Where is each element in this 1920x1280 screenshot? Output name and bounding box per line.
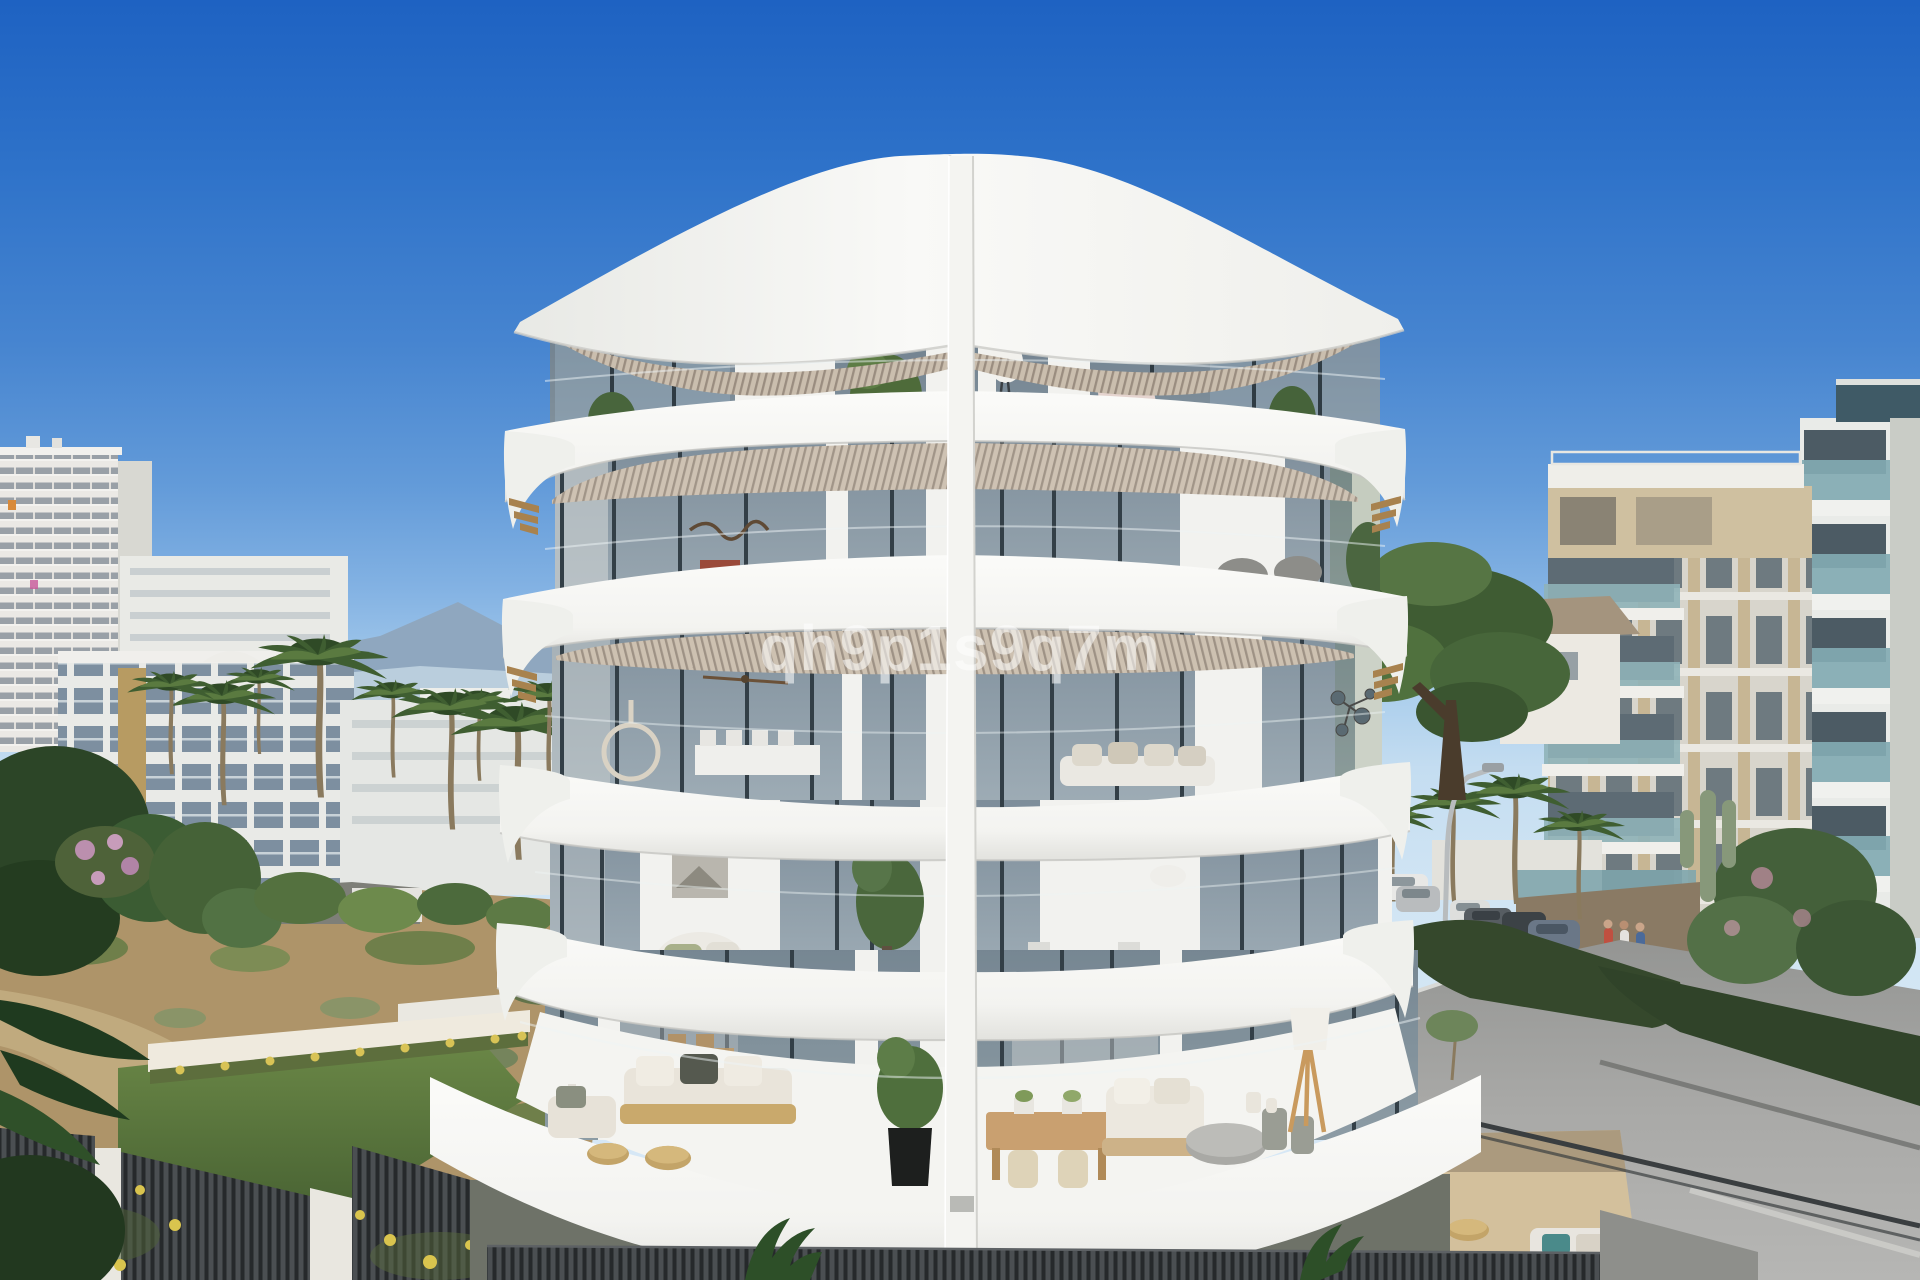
svg-text:qh9p1s9q7m: qh9p1s9q7m — [759, 612, 1160, 684]
